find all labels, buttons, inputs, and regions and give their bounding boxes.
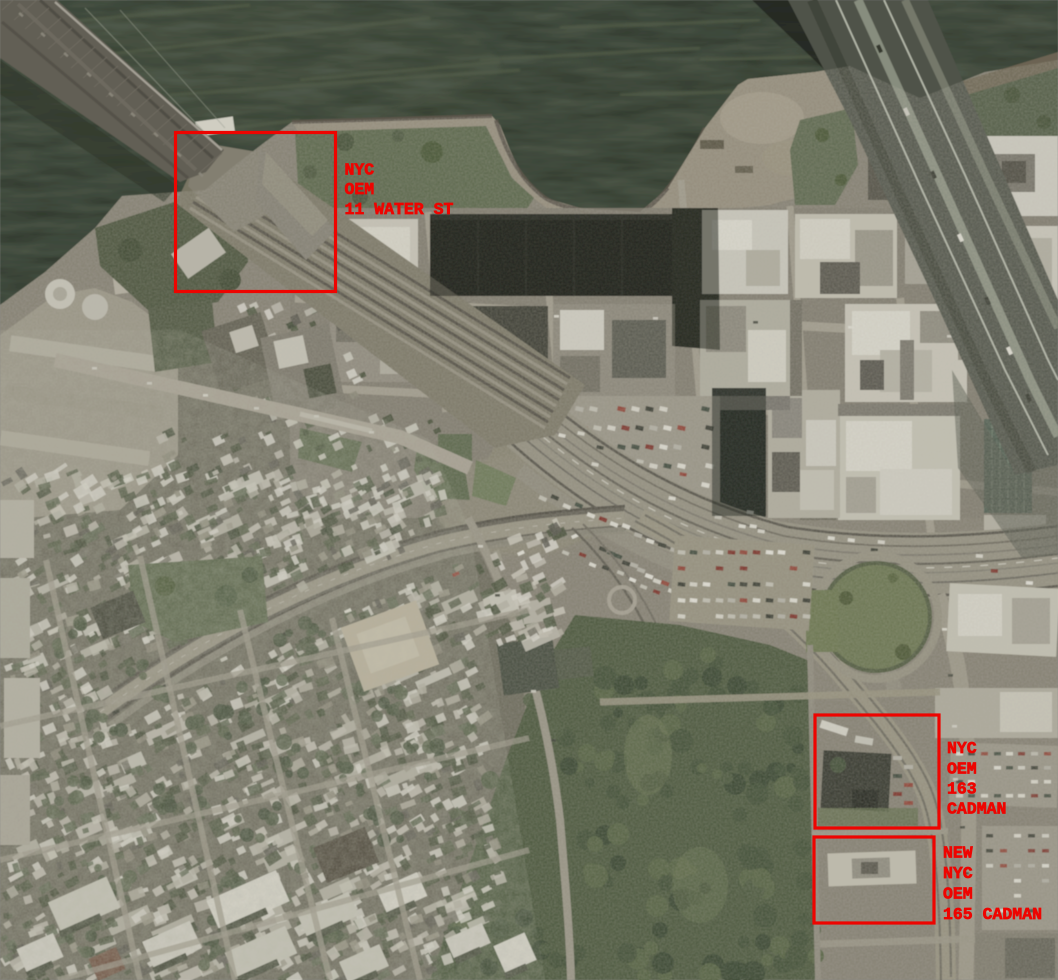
svg-text:OEM: OEM (345, 180, 375, 199)
svg-text:NYC: NYC (345, 161, 375, 180)
svg-text:NYC: NYC (947, 739, 977, 758)
svg-text:NYC: NYC (943, 864, 973, 883)
svg-text:NEW: NEW (943, 844, 973, 863)
svg-text:CADMAN: CADMAN (947, 800, 1006, 819)
svg-text:OEM: OEM (943, 885, 973, 904)
svg-text:165 CADMAN: 165 CADMAN (943, 905, 1042, 924)
svg-text:11 WATER ST: 11 WATER ST (345, 200, 454, 219)
svg-text:OEM: OEM (947, 760, 977, 779)
svg-text:163: 163 (947, 780, 977, 799)
